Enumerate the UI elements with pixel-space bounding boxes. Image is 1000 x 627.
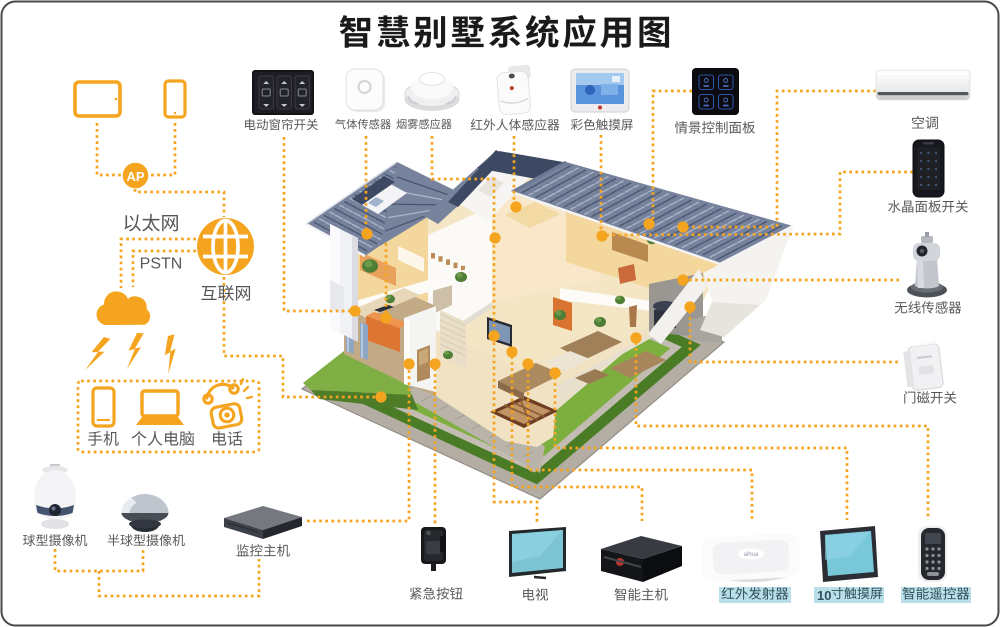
svg-text:alhua: alhua [744, 552, 759, 558]
svg-text:PSTN: PSTN [140, 256, 183, 273]
svg-text:10: 10 [817, 588, 831, 603]
svg-text:AP: AP [126, 169, 144, 184]
